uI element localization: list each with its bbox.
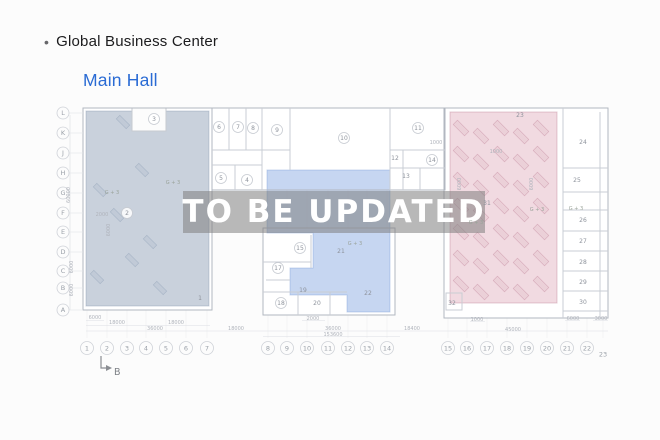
dimension-text: 6000 bbox=[106, 224, 112, 237]
col-label: 20 bbox=[543, 344, 551, 352]
room-number: 25 bbox=[573, 177, 581, 184]
room-number: 20 bbox=[313, 300, 321, 307]
dimension-text: 18000 bbox=[168, 320, 184, 326]
col-label: 14 bbox=[383, 344, 391, 352]
dimension-text: 6000 bbox=[69, 261, 75, 274]
row-label: A bbox=[61, 306, 66, 314]
col-label: 15 bbox=[444, 344, 452, 352]
room-number: 17 bbox=[274, 265, 282, 272]
room-number: 23 bbox=[516, 112, 524, 119]
zone-annotation: G + 3 bbox=[105, 190, 119, 196]
room-number: 2 bbox=[125, 210, 129, 217]
row-label: C bbox=[61, 267, 66, 275]
row-label: E bbox=[61, 228, 65, 236]
section-marker-label: B bbox=[114, 367, 121, 378]
room-number: 11 bbox=[414, 125, 422, 132]
watermark-text: TO BE UPDATED bbox=[182, 194, 485, 230]
room-number: 1 bbox=[198, 295, 202, 302]
section-marker-b: B bbox=[101, 356, 121, 378]
col-label: 10 bbox=[303, 344, 311, 352]
zone-annotation: G + 3 bbox=[469, 220, 483, 226]
dimension-text: 2000 bbox=[96, 212, 109, 218]
zone-annotation: G + 3 bbox=[348, 241, 362, 247]
col-label: 19 bbox=[523, 344, 531, 352]
col-label: 3 bbox=[125, 344, 129, 352]
room-number: 26 bbox=[579, 217, 587, 224]
col-label: 8 bbox=[266, 344, 270, 352]
room-number: 5 bbox=[219, 175, 223, 182]
dimension-text: 6000 bbox=[89, 315, 102, 321]
col-label: 12 bbox=[344, 344, 352, 352]
row-label: F bbox=[61, 209, 65, 217]
row-label: H bbox=[61, 169, 66, 177]
room-number: 22 bbox=[364, 290, 372, 297]
dimension-text: 6000 bbox=[69, 284, 75, 297]
row-label: D bbox=[60, 248, 65, 256]
dimension-text: 6000 bbox=[457, 178, 463, 191]
zone-annotation: G + 3 bbox=[569, 206, 583, 212]
col-label: 21 bbox=[563, 344, 571, 352]
col-label: 4 bbox=[144, 344, 148, 352]
dimension-text: 1000 bbox=[471, 317, 484, 323]
col-label: 13 bbox=[363, 344, 371, 352]
dimension-text: 18400 bbox=[404, 326, 420, 332]
zone-annotation: G + 3 bbox=[530, 207, 544, 213]
room-number: 8 bbox=[251, 125, 255, 132]
room-number: 31 bbox=[483, 200, 491, 207]
col-label: 7 bbox=[205, 344, 209, 352]
room-number: 15 bbox=[296, 245, 304, 252]
room-number: 29 bbox=[579, 279, 587, 286]
row-label: J bbox=[61, 149, 64, 157]
room-number: 14 bbox=[428, 157, 436, 164]
dimension-text: 6000 bbox=[567, 316, 580, 322]
room-number: 13 bbox=[402, 173, 410, 180]
col-label: 2 bbox=[105, 344, 109, 352]
room-number: 3 bbox=[152, 116, 156, 123]
room-number: 24 bbox=[579, 139, 587, 146]
room-number: 10 bbox=[340, 135, 348, 142]
row-label: L bbox=[61, 109, 65, 117]
room-number: 9 bbox=[275, 127, 279, 134]
col-label: 11 bbox=[324, 344, 332, 352]
room-number: 21 bbox=[337, 248, 345, 255]
row-label: G bbox=[60, 189, 65, 197]
page: • Global Business Center Main Hall bbox=[0, 0, 660, 440]
room-number: 4 bbox=[245, 177, 249, 184]
dimension-text: 1000 bbox=[490, 149, 503, 155]
floor-plan: TO BE UPDATED LKJHGFEDCBA 12345678910111… bbox=[0, 0, 660, 440]
arrow-right-icon bbox=[106, 365, 112, 371]
row-label: K bbox=[61, 129, 66, 137]
dimension-text: 36000 bbox=[147, 326, 163, 332]
row-label: B bbox=[61, 284, 65, 292]
dimension-text: 45000 bbox=[505, 327, 521, 333]
col-label: 5 bbox=[164, 344, 168, 352]
dimension-text: 153600 bbox=[323, 332, 342, 338]
dimension-text: 60000 bbox=[66, 187, 72, 203]
col-label: 18 bbox=[503, 344, 511, 352]
col-label: 16 bbox=[463, 344, 471, 352]
dimension-text: 1000 bbox=[430, 140, 443, 146]
dimension-text: 18000 bbox=[109, 320, 125, 326]
col-label: 1 bbox=[85, 344, 89, 352]
room-number: 6 bbox=[217, 124, 221, 131]
room-number: 12 bbox=[391, 155, 399, 162]
col-label: 22 bbox=[583, 344, 591, 352]
col-label: 9 bbox=[285, 344, 289, 352]
dimension-text: 3000 bbox=[595, 316, 608, 322]
room-number: 28 bbox=[579, 259, 587, 266]
room-number: 18 bbox=[277, 300, 285, 307]
room-number: 32 bbox=[448, 300, 456, 307]
zone-annotation: G + 3 bbox=[166, 180, 180, 186]
room-number: 7 bbox=[236, 124, 240, 131]
col-label: 23 bbox=[599, 350, 607, 358]
room-number: 19 bbox=[299, 287, 307, 294]
col-label: 6 bbox=[184, 344, 188, 352]
watermark: TO BE UPDATED bbox=[182, 191, 485, 233]
room-number: 30 bbox=[579, 299, 587, 306]
dimension-text: 2000 bbox=[307, 316, 320, 322]
col-label: 17 bbox=[483, 344, 491, 352]
room-number: 27 bbox=[579, 238, 587, 245]
dimension-text: 6000 bbox=[529, 178, 535, 191]
col-labels: 1234567891011121314151617181920212223 bbox=[81, 342, 608, 359]
dimension-text: 18000 bbox=[228, 326, 244, 332]
